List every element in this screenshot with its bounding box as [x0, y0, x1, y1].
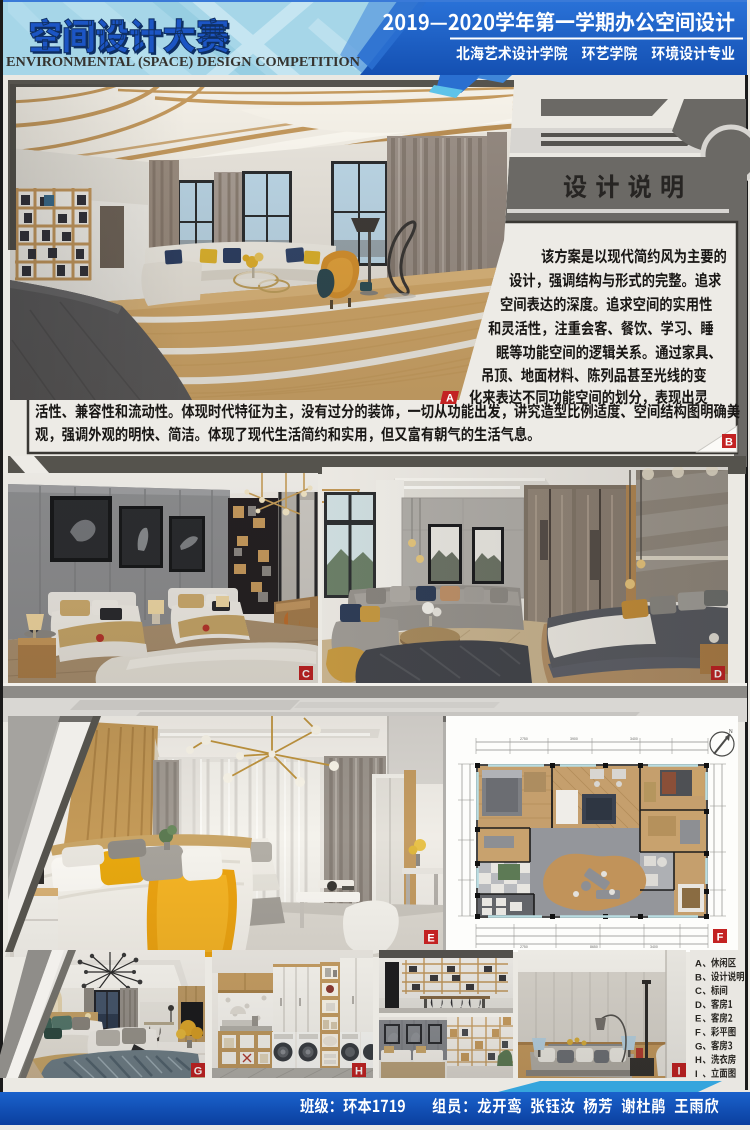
svg-text:A: A: [695, 959, 702, 970]
svg-text:ENVIRONMENTAL (SPACE) DESIGN C: ENVIRONMENTAL (SPACE) DESIGN COMPETITION: [6, 55, 360, 70]
svg-text:F: F: [717, 932, 724, 944]
svg-text:3400: 3400: [630, 737, 638, 741]
svg-text:F: F: [695, 1028, 701, 1039]
svg-text:D: D: [695, 1000, 702, 1011]
svg-text:2750: 2750: [520, 945, 528, 949]
svg-text:A: A: [446, 393, 454, 405]
svg-text:C: C: [695, 986, 702, 997]
svg-text:G: G: [695, 1041, 702, 1052]
svg-text:8650: 8650: [590, 945, 598, 949]
svg-text:3400: 3400: [650, 945, 658, 949]
svg-text:N: N: [729, 729, 733, 735]
svg-text:E: E: [427, 933, 434, 945]
svg-text:3900: 3900: [570, 737, 578, 741]
svg-text:H: H: [695, 1055, 702, 1066]
svg-text:B: B: [725, 437, 733, 449]
svg-text:I: I: [695, 1069, 698, 1080]
svg-text:B: B: [695, 972, 702, 983]
svg-text:E: E: [695, 1014, 701, 1025]
svg-text:2750: 2750: [520, 737, 528, 741]
